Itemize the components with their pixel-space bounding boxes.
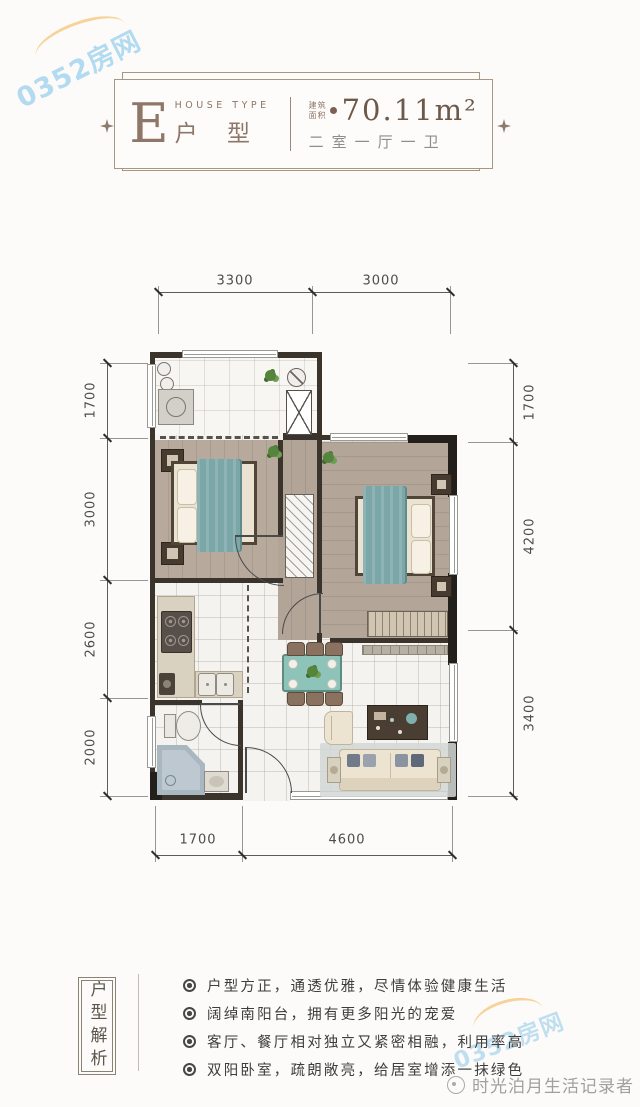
bed-blanket (363, 486, 407, 584)
kitchen-sink (216, 673, 234, 696)
diamond-icon-left (100, 119, 114, 133)
extension-line (468, 363, 518, 364)
wardrobe (367, 611, 448, 637)
house-type-en: HOUSE TYPE (175, 100, 270, 111)
bullet-icon (183, 1063, 196, 1076)
kitchen-opening (247, 585, 249, 693)
table-plant (307, 666, 318, 677)
kitchen-sink (198, 673, 216, 696)
author-watermark: 时光泊月生活记录者 (447, 1072, 634, 1097)
plant (268, 446, 279, 457)
bullet-text: 阔绰南阳台，拥有更多阳光的宠爱 (207, 1003, 458, 1024)
chair (287, 642, 305, 656)
analysis-bullet: 客厅、餐厅相对独立又紧密相融，利用率高 (183, 1027, 524, 1055)
stove-burner (178, 635, 189, 646)
dim-label: 3400 (523, 694, 538, 731)
window (449, 663, 458, 742)
plate (327, 679, 337, 689)
wall-segment (317, 352, 322, 442)
header-box: E HOUSE TYPE 户 型 建筑面积 70.11m² 二室一厅一卫 (114, 79, 493, 169)
plate (327, 659, 337, 669)
dim-label: 1700 (523, 383, 538, 420)
dim-label: 3000 (84, 490, 99, 527)
bullet-text: 户型方正，通透优雅，尽情体验健康生活 (207, 975, 508, 996)
sofa-cushion (411, 754, 424, 767)
wall-segment (278, 440, 283, 537)
diamond-icon-right (497, 119, 511, 133)
author-watermark-text: 时光泊月生活记录者 (472, 1072, 634, 1097)
analysis-bullet: 户型方正，通透优雅，尽情体验健康生活 (183, 971, 524, 999)
area-value: 70.11m² (342, 96, 478, 125)
chair (287, 692, 305, 706)
duct-shaft (286, 390, 312, 435)
stove-burner (165, 635, 176, 646)
sofa-cushion (395, 754, 408, 767)
wall-segment (317, 442, 322, 593)
nightstand (431, 474, 452, 495)
wall-segment (278, 352, 322, 358)
stove-burner (165, 616, 176, 627)
page: 0352房网 E HOUSE TYPE 户 型 建筑面积 70.11m² 二室一… (0, 0, 640, 1107)
armchair (324, 711, 353, 745)
stove (161, 611, 192, 653)
pillow (411, 504, 431, 538)
analysis-divider (138, 974, 139, 1071)
analysis-title-box: 户型解析 (78, 977, 116, 1075)
nightstand (161, 542, 184, 565)
dim-label: 4600 (328, 833, 365, 848)
toilet-tank (164, 714, 176, 738)
dimension-line (513, 363, 514, 796)
window (147, 716, 156, 768)
entry-floor (243, 792, 290, 801)
header-divider (290, 97, 291, 151)
dim-label: 2600 (84, 620, 99, 657)
washer-drum-icon (166, 397, 186, 417)
room-layout-text: 二室一厅一卫 (309, 131, 478, 152)
dim-label: 3300 (216, 274, 253, 289)
chair (306, 642, 324, 656)
hall-cabinet (285, 494, 314, 578)
plant (265, 370, 276, 381)
door-leaf (200, 703, 240, 705)
dimension-line (155, 855, 452, 856)
house-type-labels: HOUSE TYPE 户 型 (175, 100, 270, 148)
laundry-pole-icon (157, 362, 171, 376)
house-type-letter: E (129, 97, 168, 151)
sliding-opening (160, 436, 278, 439)
analysis-title: 户型解析 (85, 980, 110, 1072)
analysis-bullet: 阔绰南阳台，拥有更多阳光的宠爱 (183, 999, 524, 1027)
dimension-line (158, 292, 450, 293)
window (147, 364, 156, 428)
dim-label: 1700 (179, 833, 216, 848)
plant (323, 452, 334, 463)
wall-segment (150, 700, 202, 705)
tv-wall-shelf (362, 645, 448, 655)
extension-line (468, 442, 518, 443)
bullet-icon (183, 1007, 196, 1020)
plate (288, 679, 298, 689)
stove-burner (178, 616, 189, 627)
dot-icon (330, 107, 337, 114)
sofa-cushion (363, 754, 376, 767)
dim-label: 1700 (84, 381, 99, 418)
nightstand (431, 576, 452, 597)
fan-coil-icon (287, 368, 306, 387)
drain-icon (165, 775, 176, 786)
side-table (327, 757, 341, 783)
door-leaf (235, 535, 283, 537)
kitchen-appliance (159, 673, 175, 695)
analysis-bullets: 户型方正，通透优雅，尽情体验健康生活 阔绰南阳台，拥有更多阳光的宠爱 客厅、餐厅… (183, 971, 524, 1083)
side-table (437, 757, 451, 783)
pillow (177, 507, 197, 543)
window (182, 350, 278, 358)
door-leaf (319, 593, 321, 633)
pillow (411, 540, 431, 574)
bullet-text: 客厅、餐厅相对独立又紧密相融，利用率高 (207, 1031, 524, 1052)
house-type-cn: 户 型 (175, 114, 270, 148)
wall-segment (322, 435, 330, 440)
author-logo-icon (447, 1076, 465, 1094)
bullet-icon (183, 1035, 196, 1048)
toilet-bowl (176, 711, 201, 741)
extension-line (468, 630, 518, 631)
bathroom-sink (204, 771, 229, 792)
washing-machine (158, 389, 194, 425)
area-label: 建筑面积 (309, 101, 327, 120)
chair (325, 642, 343, 656)
chair (306, 692, 324, 706)
header-area-block: 建筑面积 70.11m² 二室一厅一卫 (309, 96, 478, 152)
extension-line (468, 796, 518, 797)
wall-segment (330, 638, 457, 643)
tv-console (367, 705, 428, 740)
pillow (177, 469, 197, 505)
window (449, 495, 458, 575)
plate (288, 659, 298, 669)
chair (325, 692, 343, 706)
dim-label: 3000 (362, 274, 399, 289)
dim-label: 4200 (523, 517, 538, 554)
entry-door-leaf (245, 747, 247, 793)
window (330, 433, 408, 441)
sofa-cushion (347, 754, 360, 767)
dim-label: 2000 (84, 728, 99, 765)
bullet-icon (183, 979, 196, 992)
